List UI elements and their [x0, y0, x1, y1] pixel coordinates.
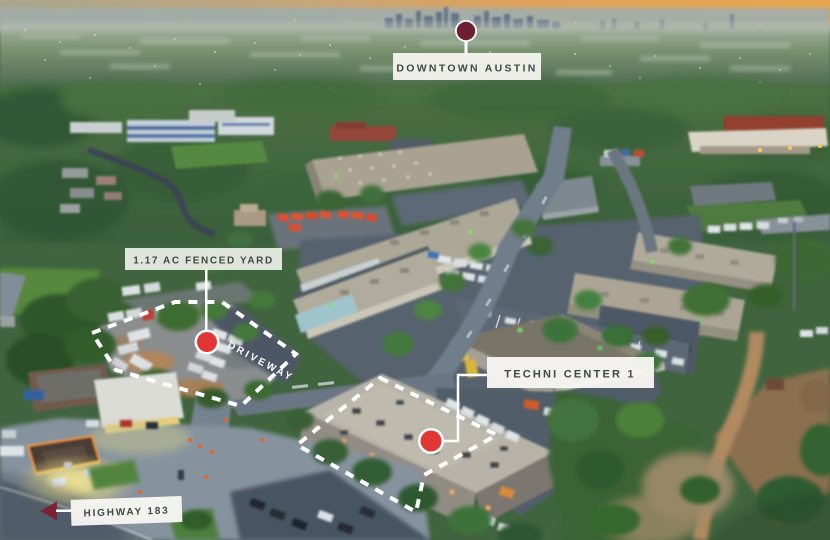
svg-text:TECHNI CENTER 1: TECHNI CENTER 1 [504, 369, 635, 381]
svg-text:DOWNTOWN AUSTIN: DOWNTOWN AUSTIN [396, 63, 537, 75]
svg-text:1.17 AC FENCED YARD: 1.17 AC FENCED YARD [133, 256, 274, 267]
